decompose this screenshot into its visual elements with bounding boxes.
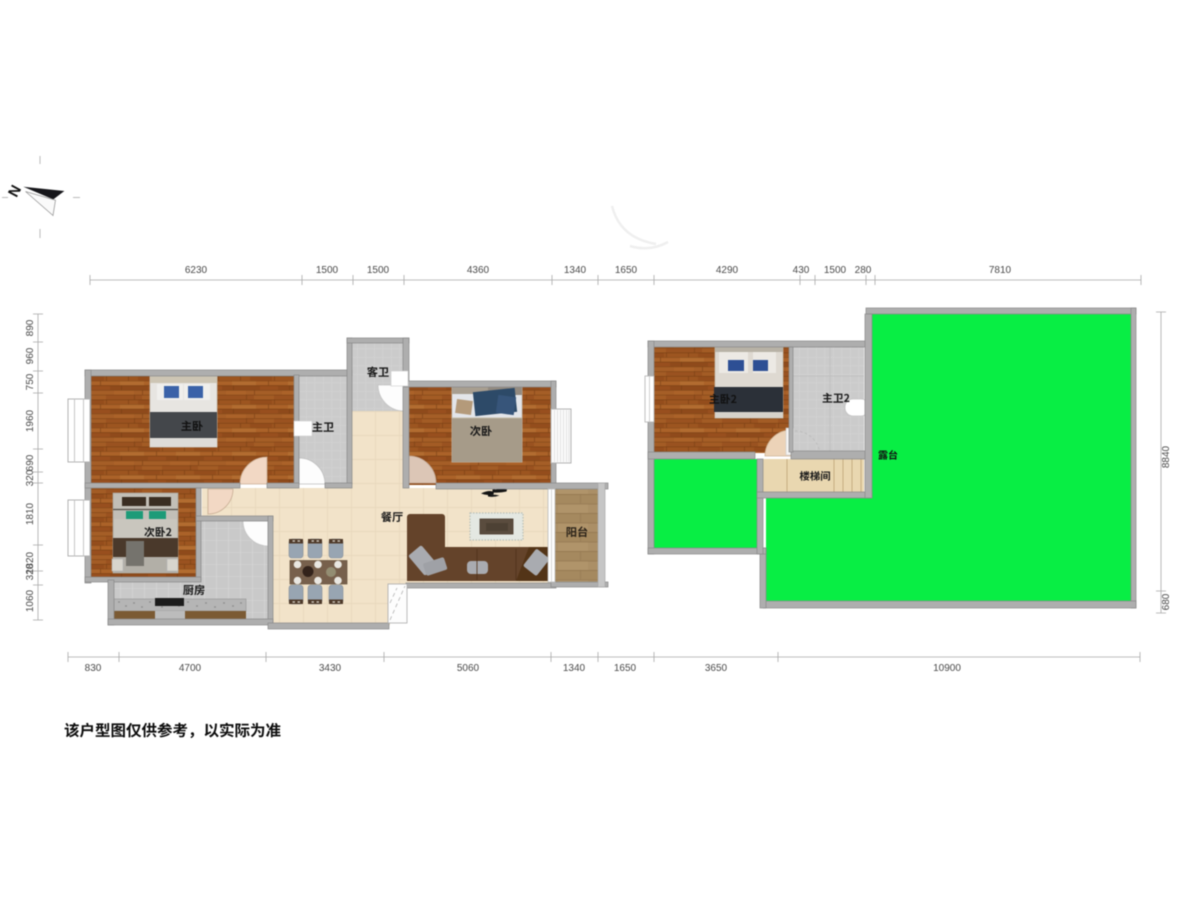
svg-text:1500: 1500	[367, 265, 390, 276]
svg-text:1060: 1060	[25, 589, 36, 612]
svg-text:320: 320	[25, 469, 36, 486]
svg-text:1500: 1500	[316, 265, 339, 276]
svg-text:430: 430	[793, 265, 810, 276]
svg-text:1340: 1340	[564, 265, 587, 276]
svg-text:690: 690	[25, 454, 36, 471]
svg-text:280: 280	[855, 265, 872, 276]
svg-text:1810: 1810	[25, 502, 36, 525]
svg-text:8840: 8840	[1161, 445, 1172, 468]
svg-text:1650: 1650	[614, 663, 637, 674]
svg-text:4700: 4700	[179, 663, 202, 674]
svg-text:830: 830	[85, 663, 102, 674]
svg-text:7810: 7810	[989, 265, 1012, 276]
svg-text:1500: 1500	[824, 265, 847, 276]
svg-text:3650: 3650	[705, 663, 728, 674]
svg-text:960: 960	[25, 347, 36, 364]
svg-text:4290: 4290	[716, 265, 739, 276]
svg-text:5060: 5060	[457, 663, 480, 674]
svg-text:4360: 4360	[467, 265, 490, 276]
svg-text:1340: 1340	[563, 663, 586, 674]
svg-text:1960: 1960	[25, 409, 36, 432]
svg-text:750: 750	[25, 373, 36, 390]
svg-text:680: 680	[1161, 593, 1172, 610]
svg-text:3430: 3430	[319, 663, 342, 674]
svg-text:1650: 1650	[615, 265, 638, 276]
svg-text:320: 320	[25, 563, 36, 580]
svg-text:6230: 6230	[185, 265, 208, 276]
svg-text:10900: 10900	[933, 663, 961, 674]
svg-text:890: 890	[25, 319, 36, 336]
